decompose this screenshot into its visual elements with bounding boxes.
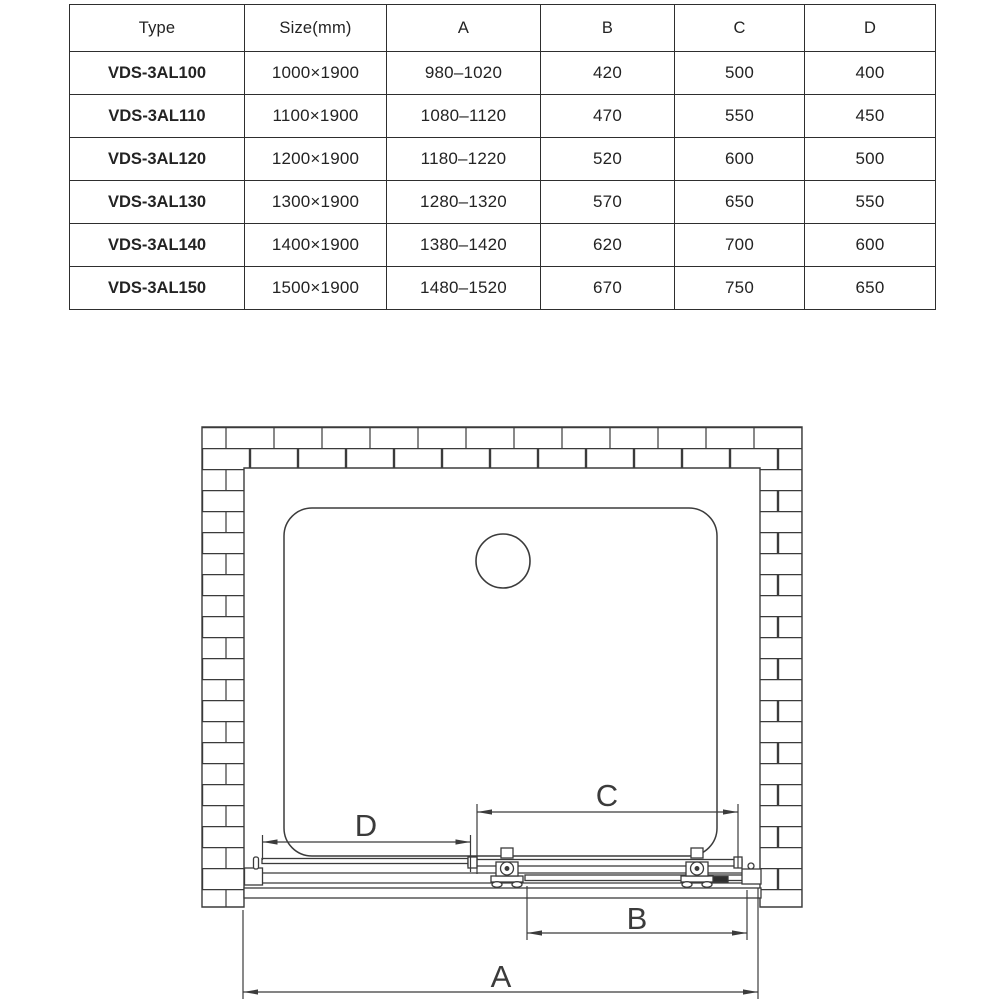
dimension-a-label: A xyxy=(491,959,512,994)
dimension-c-label: C xyxy=(596,778,618,813)
door-handle xyxy=(712,877,728,883)
installation-diagram: D C B A xyxy=(0,0,1000,1000)
left-wall-bracket xyxy=(245,868,263,885)
drain-circle xyxy=(476,534,530,588)
dimension-d-label: D xyxy=(355,808,377,843)
fixed-panel xyxy=(262,859,477,864)
threshold xyxy=(244,888,761,898)
dimension-b-label: B xyxy=(627,901,648,936)
right-wall-bracket xyxy=(742,869,761,884)
